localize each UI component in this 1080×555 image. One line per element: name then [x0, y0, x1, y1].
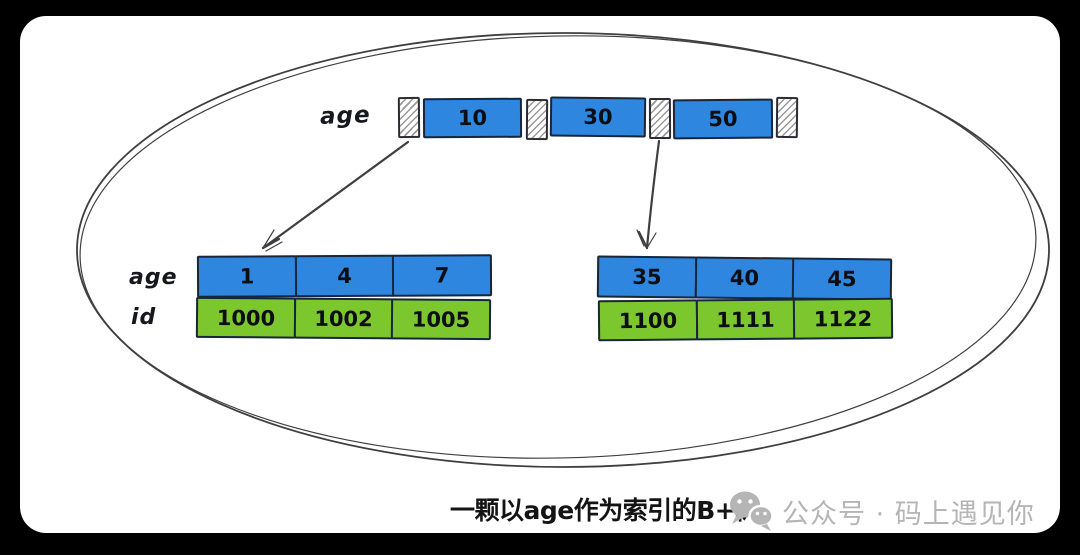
- root-key-value: 50: [708, 107, 737, 131]
- leaf-age-cell: 45: [792, 257, 892, 300]
- root-pointer-slot-4: [776, 97, 798, 138]
- left-leaf-age-label: age: [129, 265, 178, 290]
- leaf-age-cell: 4: [294, 255, 394, 298]
- root-key-value: 30: [583, 105, 612, 129]
- left-leaf-age-row: 1 4 7: [197, 254, 492, 298]
- left-leaf-id-row: 1000 1002 1005: [196, 297, 491, 340]
- bplus-tree-diagram: age 10 30 50 age id 1 4 7 1000 1002 1005…: [0, 0, 1080, 555]
- right-leaf-age-row: 35 40 45: [597, 255, 892, 300]
- leaf-age-cell: 1: [197, 255, 297, 298]
- leaf-age-cell: 35: [597, 255, 697, 298]
- root-key-cell: 10: [423, 98, 522, 139]
- caption-title: 一颗以age作为索引的B+树: [450, 491, 760, 527]
- leaf-id-cell: 1000: [196, 297, 296, 339]
- root-key-value: 10: [458, 106, 487, 130]
- leaf-age-value: 45: [827, 267, 856, 291]
- root-key-cell: 50: [673, 99, 773, 140]
- leaf-id-value: 1002: [314, 306, 373, 330]
- right-leaf-id-row: 1100 1111 1122: [598, 298, 893, 342]
- leaf-age-value: 7: [435, 263, 450, 287]
- root-key-cell: 30: [550, 96, 646, 137]
- root-pointer-slot-3: [649, 98, 671, 139]
- root-pointer-slot-2: [526, 99, 548, 140]
- leaf-age-cell: 40: [694, 256, 794, 299]
- watermark-text: 公众号 · 码上遇见你: [782, 492, 1035, 531]
- watermark: 公众号 · 码上遇见你: [728, 490, 1035, 532]
- leaf-id-cell: 1002: [293, 298, 393, 340]
- leaf-id-cell: 1100: [598, 299, 698, 341]
- leaf-id-cell: 1122: [793, 298, 893, 340]
- leaf-id-value: 1122: [814, 306, 873, 331]
- leaf-id-cell: 1005: [391, 298, 491, 340]
- leaf-id-value: 1100: [619, 308, 678, 333]
- leaf-id-value: 1005: [412, 307, 471, 331]
- leaf-age-value: 35: [632, 265, 661, 289]
- root-age-label: age: [320, 102, 371, 130]
- leaf-age-value: 4: [337, 264, 352, 288]
- leaf-age-value: 1: [240, 264, 255, 288]
- left-leaf-id-label: id: [131, 305, 156, 330]
- leaf-id-value: 1111: [716, 307, 775, 332]
- leaf-age-value: 40: [730, 266, 759, 290]
- leaf-id-cell: 1111: [695, 299, 795, 341]
- leaf-age-cell: 7: [392, 254, 492, 297]
- wechat-icon: [728, 490, 774, 532]
- root-pointer-slot-1: [398, 97, 420, 138]
- leaf-id-value: 1000: [217, 306, 276, 330]
